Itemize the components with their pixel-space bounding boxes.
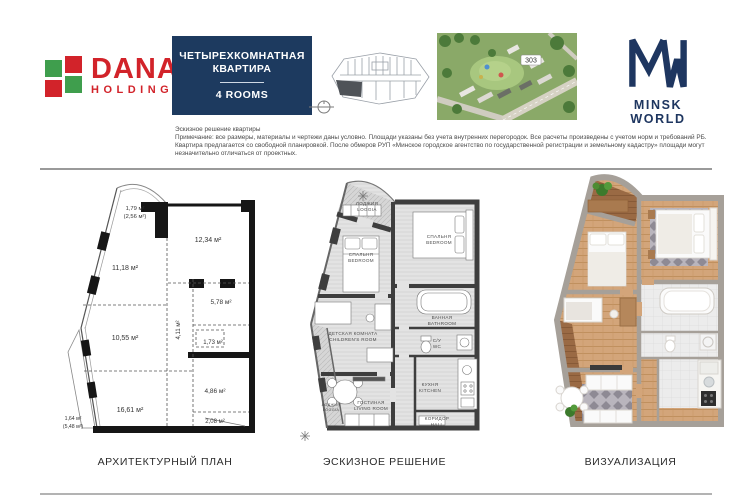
caption-sketch: ЭСКИЗНОЕ РЕШЕНИЕ <box>287 456 482 468</box>
area-loggia-top-total: (2,56 м²) <box>124 214 147 220</box>
area-room-mid-right: 5,78 м² <box>210 299 232 306</box>
label-bedroom-left-ru: СПАЛЬНЯ <box>349 252 374 257</box>
label-kitchen-ru: КУХНЯ <box>422 382 439 387</box>
label-wc-en: WC <box>433 344 442 349</box>
area-room-bottom-left: 16,61 м² <box>117 407 144 414</box>
label-kitchen-en: KITCHEN <box>419 388 441 393</box>
caption-visualization: ВИЗУАЛИЗАЦИЯ <box>528 456 733 468</box>
label-bathroom-ru: ВАННАЯ <box>432 315 453 320</box>
footer-divider <box>40 493 712 495</box>
highlighted-unit <box>336 80 362 97</box>
label-children-en: CHILDREN'S ROOM <box>329 337 377 342</box>
label-hall-ru: КОРИДОР <box>425 416 449 421</box>
mw-monogram-icon <box>626 36 690 90</box>
floorplate-outline <box>332 53 429 104</box>
aerial-location-marker: 303 <box>521 55 541 65</box>
dana-holdings-logo: DANA HOLDINGS <box>45 56 185 98</box>
brochure-page: DANA HOLDINGS ЧЕТЫРЕХКОМНАТНАЯ КВАРТИРА … <box>0 0 750 500</box>
title-line1: ЧЕТЫРЕХКОМНАТНАЯ <box>179 50 305 63</box>
area-corridor: 4,11 м² <box>176 320 182 339</box>
plan1-partitions <box>83 238 249 426</box>
caption-architectural: АРХИТЕКТУРНЫЙ ПЛАН <box>55 456 275 468</box>
disclaimer-title: Эскизное решение квартиры <box>175 126 715 134</box>
disclaimer: Эскизное решение квартиры Примечание: вс… <box>175 126 715 158</box>
label-living-en: LIVING ROOM <box>354 406 388 411</box>
minsk-world-logo: MINSK WORLD <box>606 36 710 126</box>
area-wc: 2,08 м² <box>205 419 224 425</box>
label-bedroom-right-en: BEDROOM <box>426 240 452 245</box>
label-loggia-top-en: LOGGIA <box>357 207 377 212</box>
aerial-photo: 303 <box>437 33 577 120</box>
dana-sub: HOLDINGS <box>91 84 185 96</box>
plan1-balconies <box>68 184 167 428</box>
area-loggia-top: 1,79 м² <box>126 206 145 212</box>
area-loggia-bottom-total: (5,48 м²) <box>63 424 84 430</box>
title-rooms: 4 ROOMS <box>216 89 269 101</box>
visualization-render <box>528 172 733 452</box>
area-bathroom: 4,86 м² <box>204 388 226 395</box>
label-wc-ru: С/У <box>433 338 441 343</box>
sketch-plan: ЛОДЖИЯ LOGGIA СПАЛЬНЯ BEDROOM СПАЛЬНЯ BE… <box>287 178 482 452</box>
label-hall-en: HALL <box>431 422 444 427</box>
label-loggia-top-ru: ЛОДЖИЯ <box>356 201 378 206</box>
svg-text:303: 303 <box>525 58 537 65</box>
label-bedroom-right-ru: СПАЛЬНЯ <box>427 234 452 239</box>
label-living-ru: ГОСТИНАЯ <box>357 400 384 405</box>
title-divider <box>220 82 264 83</box>
header-divider <box>40 168 712 170</box>
area-room-upper-left: 11,18 м² <box>112 265 139 272</box>
label-bedroom-left-en: BEDROOM <box>348 258 374 263</box>
label-loggia-bottom-ru: ЛОДЖИЯ <box>322 403 341 407</box>
area-room-mid-left: 10,55 м² <box>112 335 139 342</box>
mw-wordmark: MINSK WORLD <box>606 98 710 126</box>
architectural-plan: 1,79 м² (2,56 м²) 12,34 м² 11,18 м² 5,78… <box>55 180 275 452</box>
apartment-title-block: ЧЕТЫРЕХКОМНАТНАЯ КВАРТИРА 4 ROOMS <box>172 36 312 115</box>
title-line2: КВАРТИРА <box>213 63 272 76</box>
disclaimer-body: Примечание: все размеры, материалы и чер… <box>175 134 715 158</box>
label-bathroom-en: BATHROOM <box>428 321 457 326</box>
dana-name: DANA <box>91 56 185 82</box>
area-room-top-right: 12,34 м² <box>195 237 222 244</box>
plan1-walls <box>81 200 255 433</box>
label-loggia-bottom-en: LOGGIA <box>323 408 340 412</box>
floorplate-diagram <box>328 50 433 108</box>
area-storage: 1,73 м² <box>203 340 222 346</box>
area-loggia-bottom: 1,64 м² <box>65 416 82 422</box>
label-children-ru: ДЕТСКАЯ КОМНАТА <box>329 331 379 336</box>
dana-squares-icon <box>45 56 85 98</box>
